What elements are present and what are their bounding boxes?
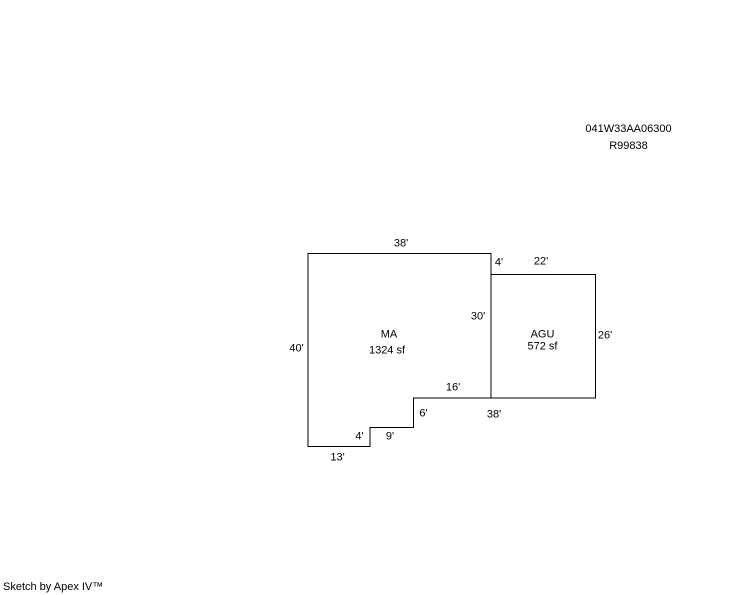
area-size-label: 572 sf: [528, 341, 558, 352]
dimension-label: 16': [446, 382, 460, 393]
area-size-label: 1324 sf: [369, 346, 405, 357]
dimension-label: 38': [487, 409, 501, 420]
dimension-label: 26': [598, 331, 612, 342]
floorplan-drawing: [0, 0, 744, 595]
dimension-label: 13': [330, 453, 344, 464]
dimension-label: 38': [394, 238, 408, 249]
dimension-label: 40': [289, 344, 303, 355]
area-code-label: AGU: [531, 329, 555, 340]
area-code-label: MA: [381, 329, 398, 340]
dimension-label: 4': [355, 431, 363, 442]
dimension-label: 22': [534, 256, 548, 267]
dimension-label: 6': [419, 409, 427, 420]
dimension-label: 4': [495, 257, 503, 268]
sketch-page: 041W33AA06300 R99838 38'4'22'30'26'40'16…: [0, 0, 744, 595]
apex-credit: Sketch by Apex IV™: [3, 581, 103, 594]
dimension-label: 9': [386, 432, 394, 443]
dimension-label: 30': [471, 312, 485, 323]
